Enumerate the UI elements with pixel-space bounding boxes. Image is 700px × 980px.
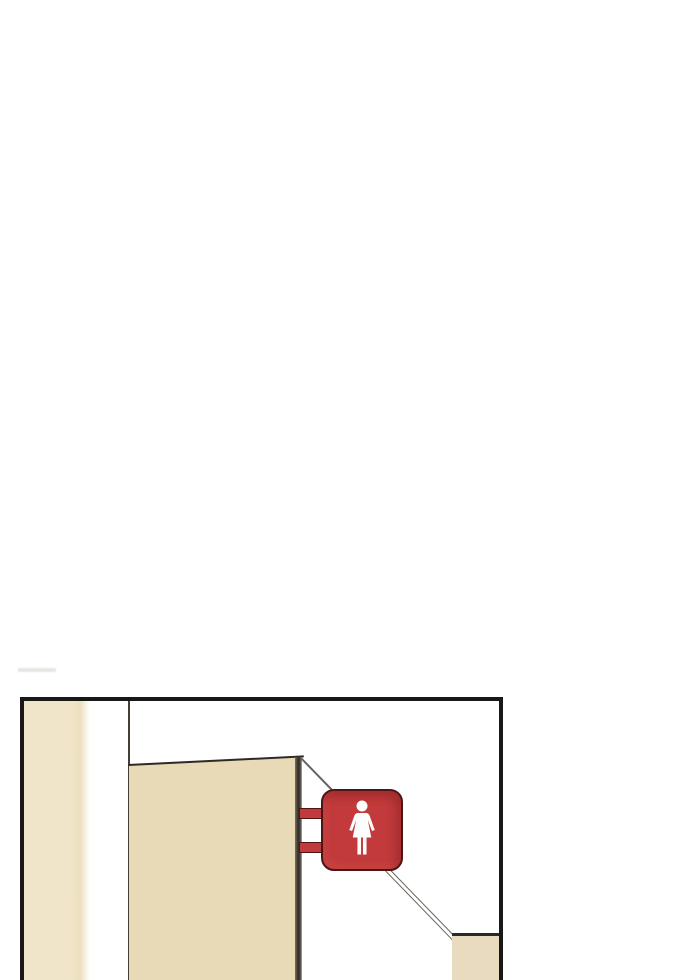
corridor-perspective-line-lower [385,868,456,941]
left-wall-strip [24,701,90,980]
womens-restroom-sign [321,789,403,871]
far-side-wall [452,933,499,980]
end-wall [129,756,295,980]
end-wall-side-edge [295,757,302,980]
page-canvas [0,0,700,980]
female-figure-icon [345,800,380,858]
comic-panel [20,697,503,980]
previous-panel-remnant [18,668,56,672]
panel-content [24,701,499,980]
